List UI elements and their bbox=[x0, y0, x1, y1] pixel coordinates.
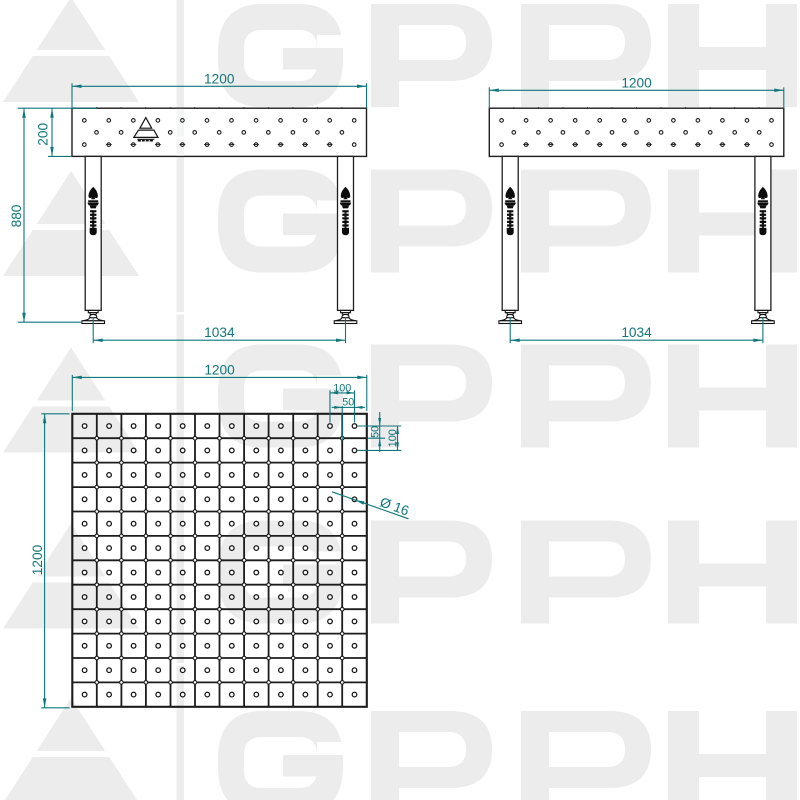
svg-text:1200: 1200 bbox=[30, 544, 45, 575]
svg-text:100: 100 bbox=[333, 382, 351, 394]
svg-text:50: 50 bbox=[369, 426, 381, 438]
svg-text:1034: 1034 bbox=[204, 325, 235, 340]
svg-text:1200: 1200 bbox=[204, 72, 235, 87]
svg-text:1200: 1200 bbox=[621, 76, 652, 91]
svg-text:1200: 1200 bbox=[204, 362, 235, 377]
svg-text:880: 880 bbox=[9, 204, 24, 227]
svg-text:100: 100 bbox=[387, 429, 399, 447]
svg-text:50: 50 bbox=[342, 397, 354, 409]
svg-text:1034: 1034 bbox=[621, 325, 652, 340]
svg-text:200: 200 bbox=[36, 122, 51, 145]
